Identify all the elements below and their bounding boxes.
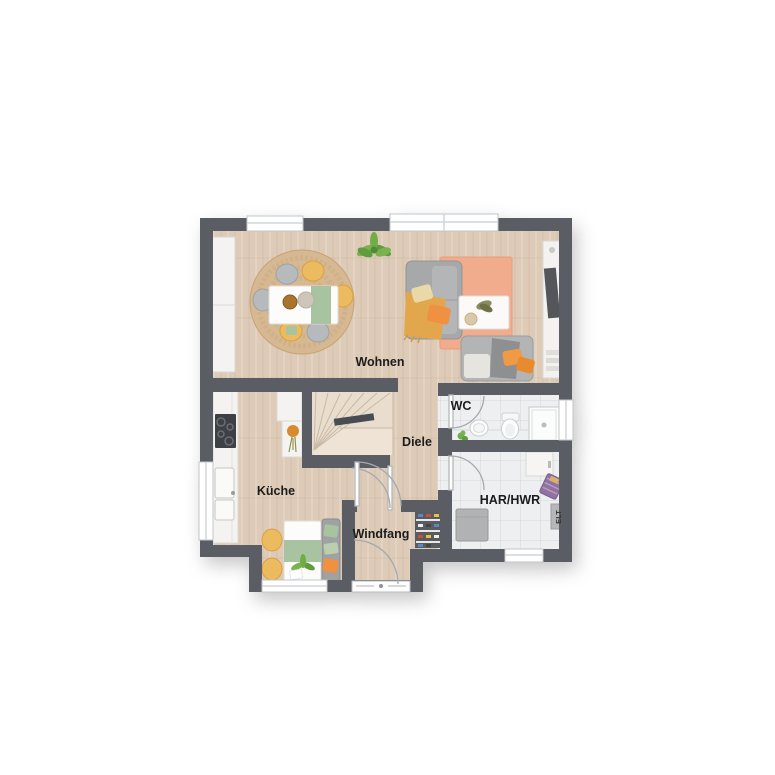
nook-bench [322, 519, 340, 583]
wall-wohnen-wc [438, 383, 559, 395]
building: Wohnen Küche Diele Windfang WC HAR/HWR E… [199, 214, 573, 592]
shoe-rack [415, 511, 443, 548]
napkin [289, 569, 302, 580]
label-windfang: Windfang [353, 527, 410, 541]
entrance-door [352, 581, 410, 592]
chair-green-pillow [286, 326, 297, 335]
nook-table [284, 521, 321, 583]
sofa [404, 261, 462, 343]
label-kueche: Küche [257, 484, 295, 498]
har-door-leaf [449, 456, 453, 490]
dining-chair-yellow [302, 261, 324, 281]
table-runner [311, 286, 331, 324]
pillow-orange [322, 558, 339, 573]
floorplan-page: Wohnen Küche Diele Windfang WC HAR/HWR E… [0, 0, 775, 775]
label-har-hwr: HAR/HWR [480, 493, 540, 507]
bowl [465, 313, 477, 325]
wall-nook-windfang [342, 500, 355, 585]
label-elt: ELT [554, 510, 563, 524]
pillow-green [323, 524, 339, 538]
kitchen-counter [213, 388, 238, 543]
washing-machine [456, 509, 488, 541]
shower-drain [542, 423, 547, 428]
label-wohnen: Wohnen [355, 355, 404, 369]
floorplan-image: Wohnen Küche Diele Windfang WC HAR/HWR E… [0, 0, 775, 775]
staircase [312, 392, 393, 455]
nook-chair-yellow [262, 529, 282, 551]
sofa-second [461, 336, 536, 381]
dining-chair-gray [276, 264, 298, 284]
wall-stair-left [302, 388, 312, 457]
wall-south-right [410, 549, 572, 562]
label-wc: WC [451, 399, 472, 413]
pillow-green [323, 542, 338, 555]
bowl [283, 295, 297, 309]
label-diele: Diele [402, 435, 432, 449]
wall-shoe-niche-right [440, 512, 452, 552]
wall-wc-har [438, 440, 559, 452]
nook-chair-yellow [262, 558, 282, 580]
coffee-table [459, 296, 509, 329]
windfang-door-leaf [355, 462, 359, 506]
centerpiece [298, 292, 314, 308]
sink-drainer [215, 500, 234, 520]
faucet [231, 491, 235, 495]
decor-item [549, 247, 555, 253]
door-handle [379, 584, 383, 588]
wall-windfang-top-right [401, 500, 452, 512]
wall-diele-wc-a [438, 383, 452, 396]
dining-chair-gray [307, 322, 329, 342]
